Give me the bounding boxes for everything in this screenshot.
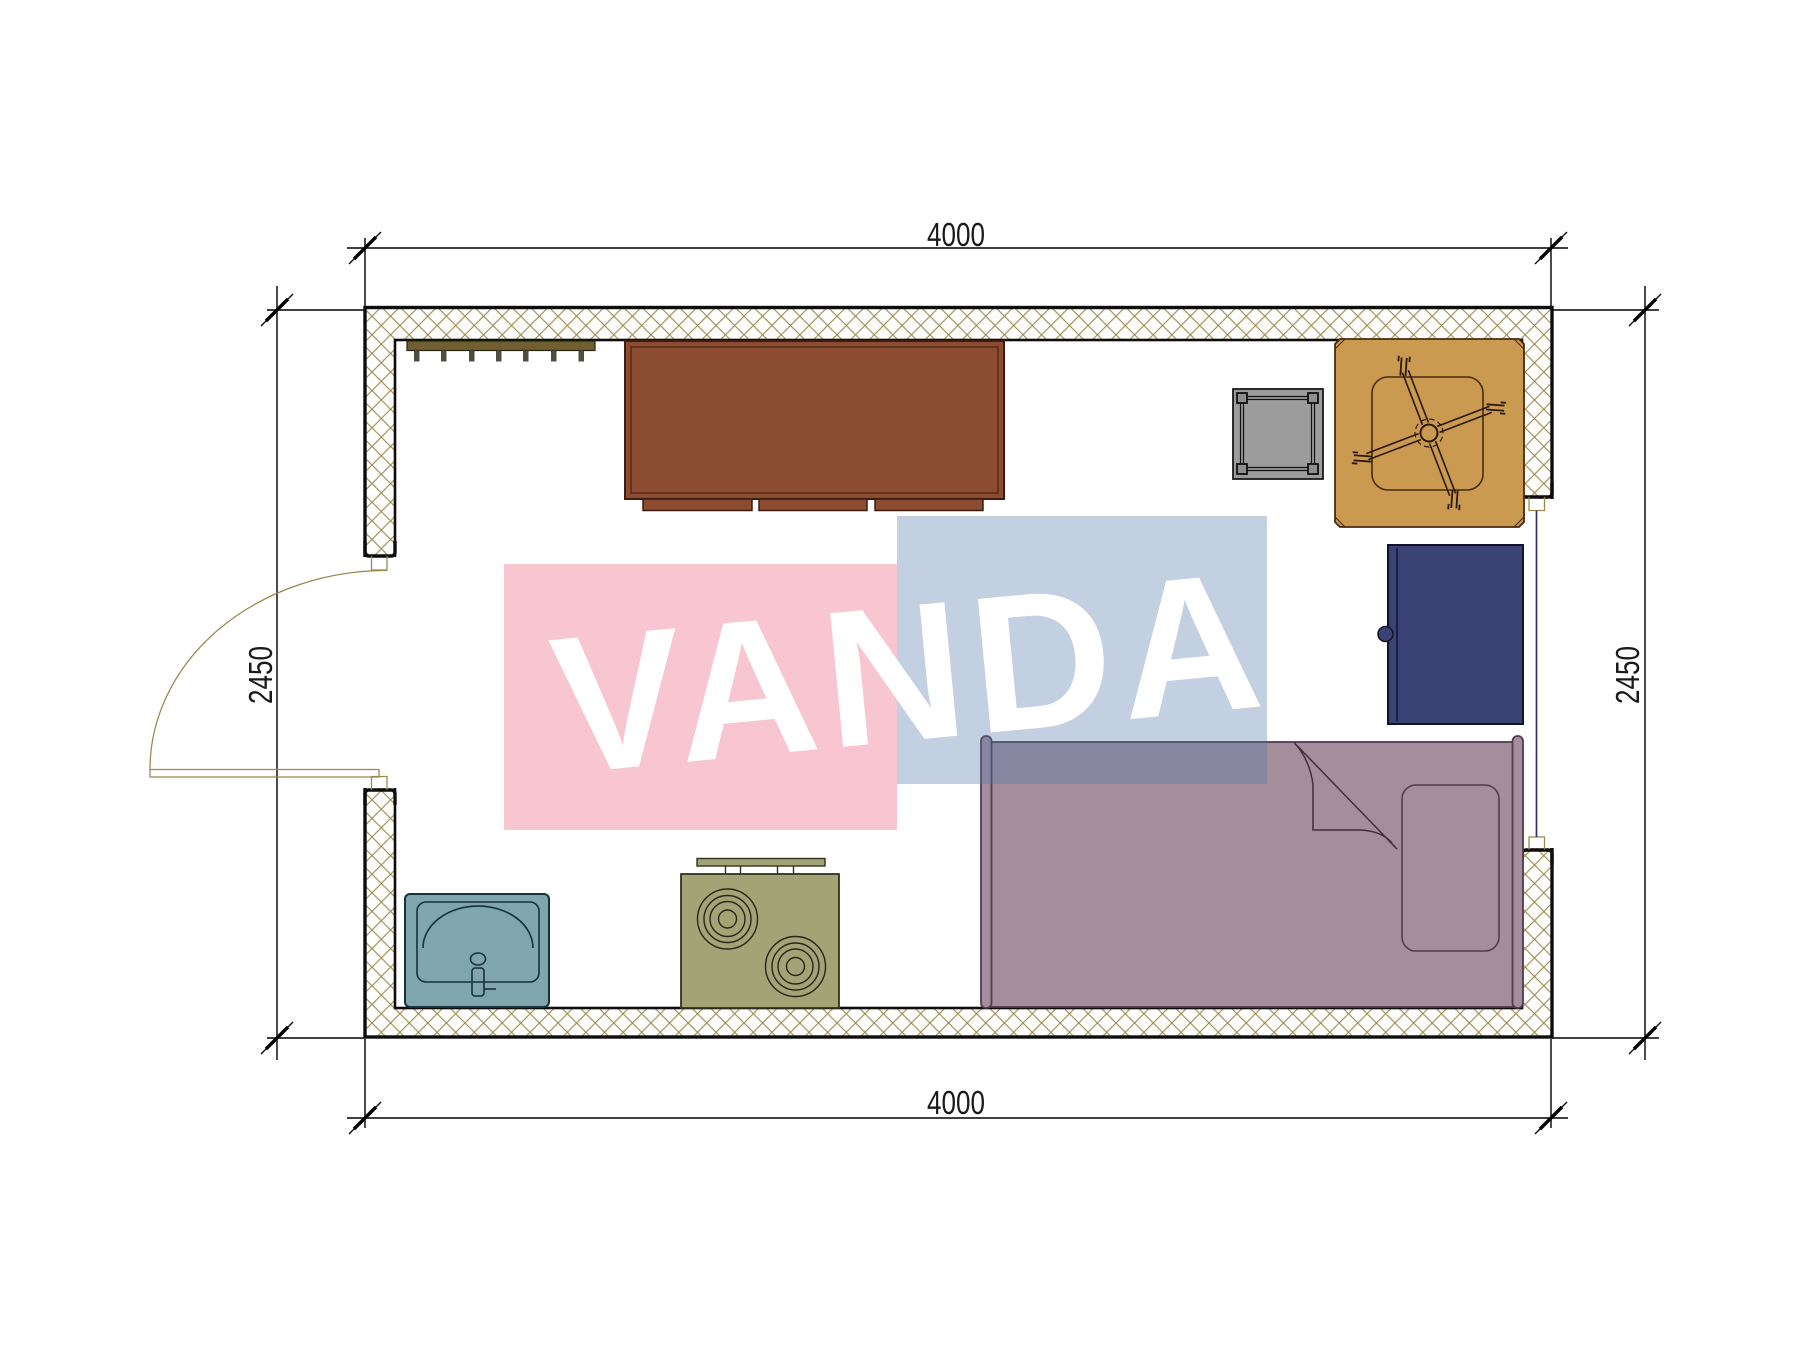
svg-text:4000: 4000 — [927, 217, 985, 254]
svg-text:2450: 2450 — [243, 646, 280, 704]
svg-text:2450: 2450 — [1610, 646, 1647, 704]
svg-text:4000: 4000 — [927, 1085, 985, 1122]
